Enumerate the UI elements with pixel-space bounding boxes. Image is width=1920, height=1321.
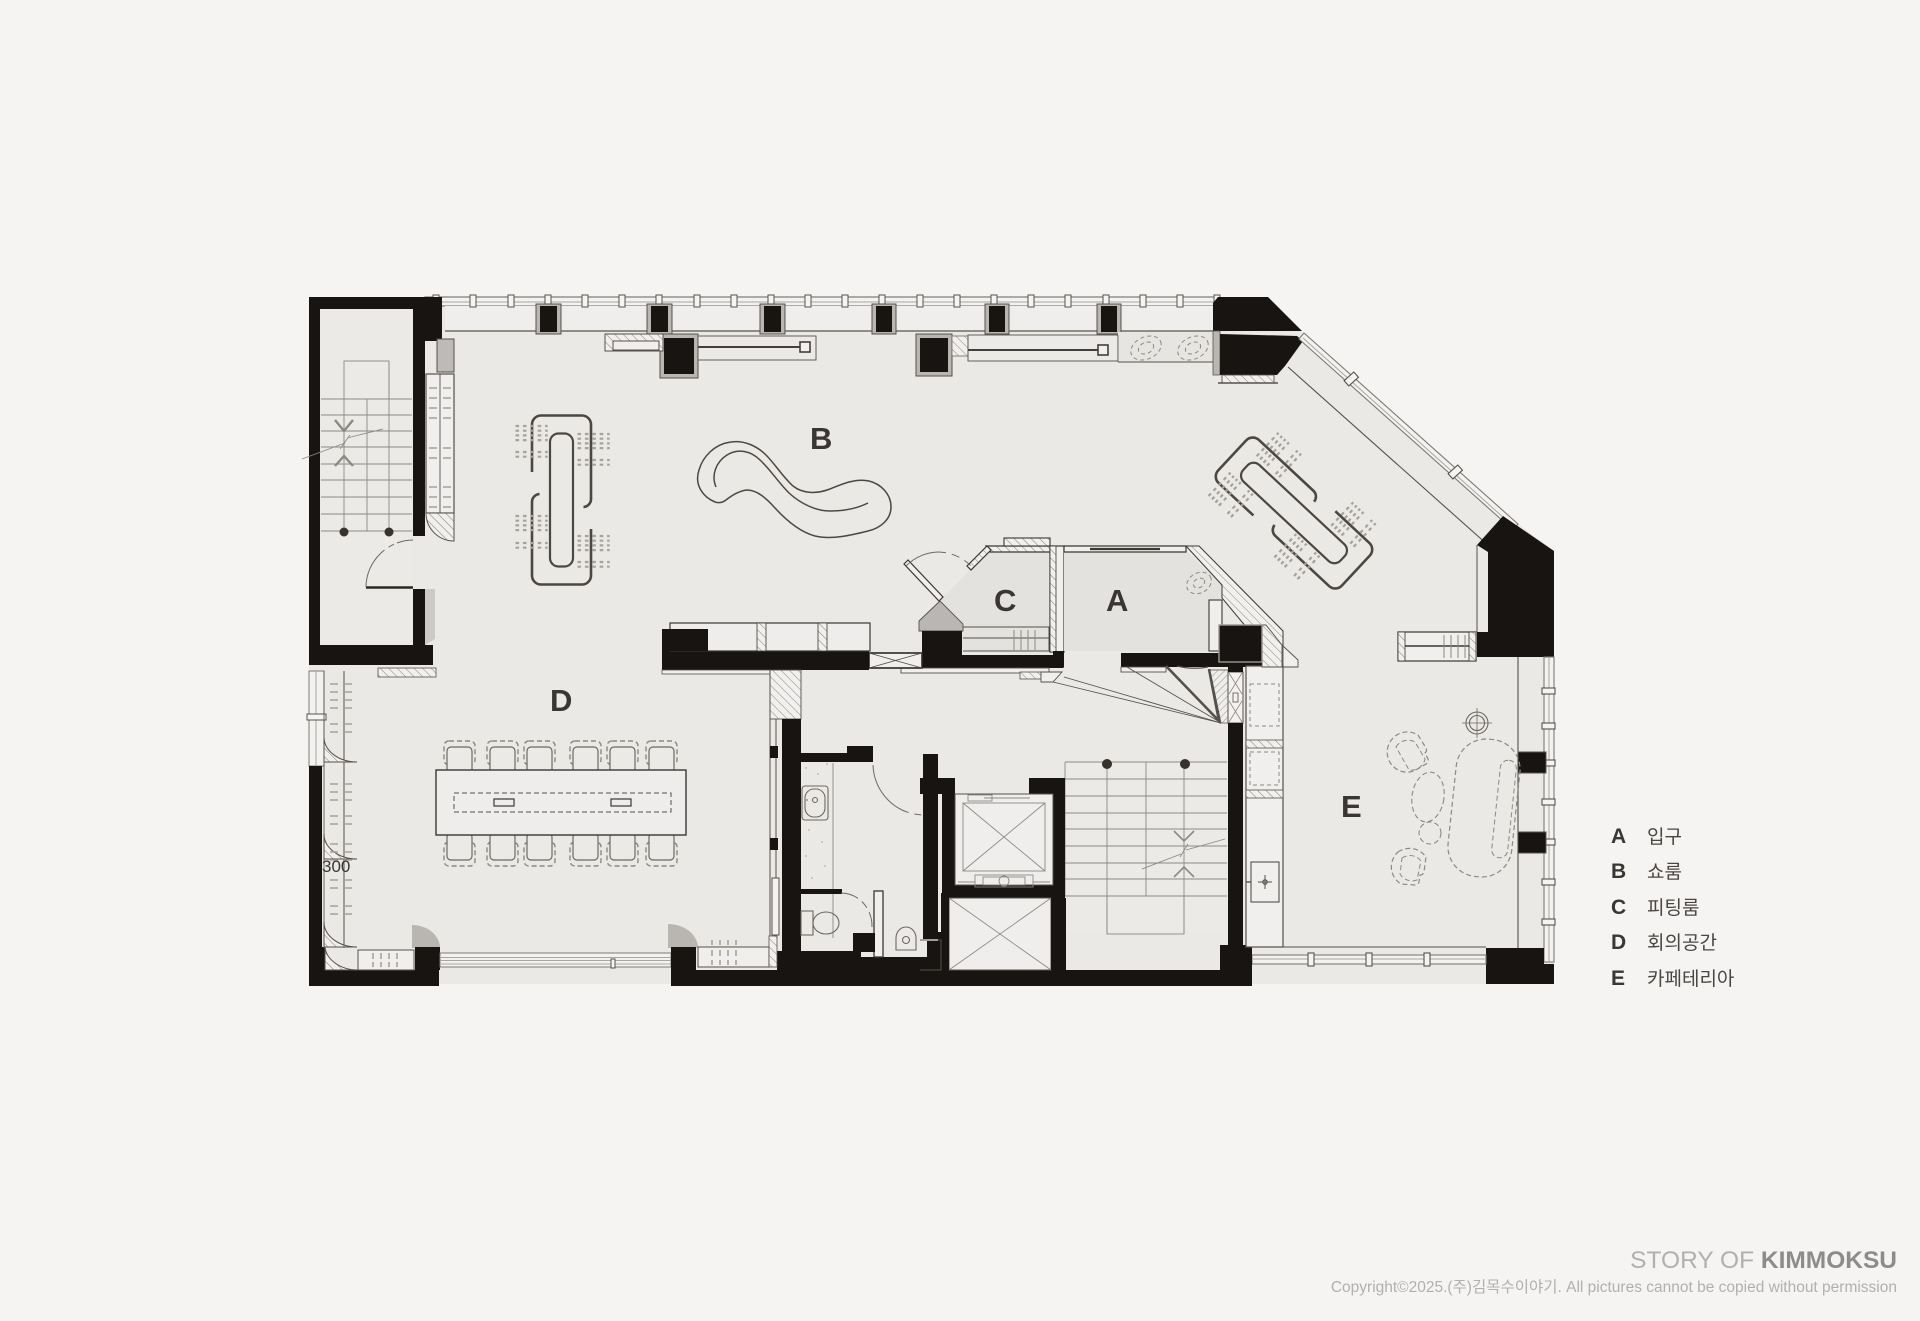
svg-text:D: D: [1611, 931, 1626, 954]
svg-text:E: E: [1341, 789, 1362, 824]
svg-text:D: D: [550, 683, 572, 718]
svg-text:Copyright©2025.(주)김목수이야기. All: Copyright©2025.(주)김목수이야기. All pictures c…: [1331, 1278, 1897, 1296]
svg-text:A: A: [1106, 583, 1128, 618]
svg-text:카페테리아: 카페테리아: [1647, 968, 1734, 990]
svg-text:STORY OF KIMMOKSU: STORY OF KIMMOKSU: [1630, 1247, 1897, 1274]
svg-text:B: B: [810, 421, 832, 456]
svg-text:E: E: [1611, 967, 1625, 990]
svg-text:B: B: [1611, 860, 1626, 883]
svg-text:회의공간: 회의공간: [1647, 932, 1717, 954]
svg-text:C: C: [994, 583, 1016, 618]
svg-text:C: C: [1611, 896, 1626, 919]
svg-text:입구: 입구: [1647, 826, 1682, 848]
svg-text:피팅룸: 피팅룸: [1647, 897, 1699, 919]
svg-text:A: A: [1611, 825, 1626, 848]
svg-text:쇼룸: 쇼룸: [1647, 862, 1682, 883]
svg-text:300: 300: [322, 857, 350, 876]
